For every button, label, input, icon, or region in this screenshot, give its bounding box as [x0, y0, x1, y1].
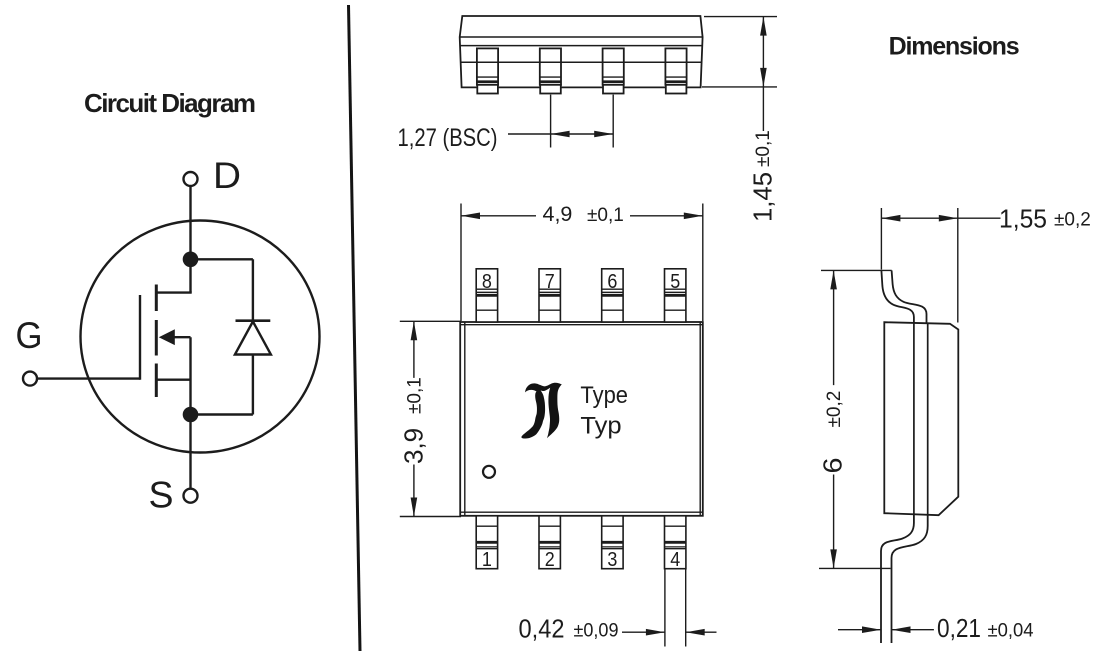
- svg-text:±0,1: ±0,1: [753, 130, 774, 167]
- svg-text:3,9: 3,9: [399, 428, 429, 464]
- svg-text:Dimensions: Dimensions: [889, 33, 1020, 61]
- svg-text:Type: Type: [580, 382, 628, 409]
- svg-text:±0,1: ±0,1: [405, 377, 426, 414]
- svg-text:±0,2: ±0,2: [824, 391, 845, 428]
- svg-text:6: 6: [818, 458, 848, 474]
- svg-text:±0,2: ±0,2: [1054, 209, 1091, 230]
- svg-text:Typ: Typ: [580, 413, 621, 440]
- svg-text:5: 5: [670, 270, 680, 293]
- svg-text:1,55: 1,55: [999, 203, 1047, 233]
- svg-text:0,21: 0,21: [937, 613, 981, 643]
- svg-text:2: 2: [545, 548, 555, 571]
- svg-text:1,27 (BSC): 1,27 (BSC): [398, 124, 498, 152]
- svg-text:G: G: [16, 315, 43, 356]
- svg-text:1,45: 1,45: [748, 172, 778, 222]
- svg-text:8: 8: [482, 270, 492, 293]
- svg-text:S: S: [149, 475, 174, 516]
- svg-text:D: D: [213, 155, 241, 196]
- svg-text:±0,1: ±0,1: [587, 205, 624, 226]
- svg-text:0,42: 0,42: [519, 614, 565, 644]
- svg-text:1: 1: [482, 548, 492, 571]
- svg-text:7: 7: [545, 270, 555, 293]
- svg-text:6: 6: [607, 270, 617, 293]
- svg-text:4,9: 4,9: [543, 202, 573, 226]
- svg-text:±0,09: ±0,09: [574, 621, 619, 642]
- svg-text:±0,04: ±0,04: [988, 621, 1034, 642]
- svg-text:3: 3: [607, 548, 617, 571]
- svg-text:4: 4: [670, 548, 680, 571]
- svg-text:Circuit Diagram: Circuit Diagram: [84, 88, 256, 118]
